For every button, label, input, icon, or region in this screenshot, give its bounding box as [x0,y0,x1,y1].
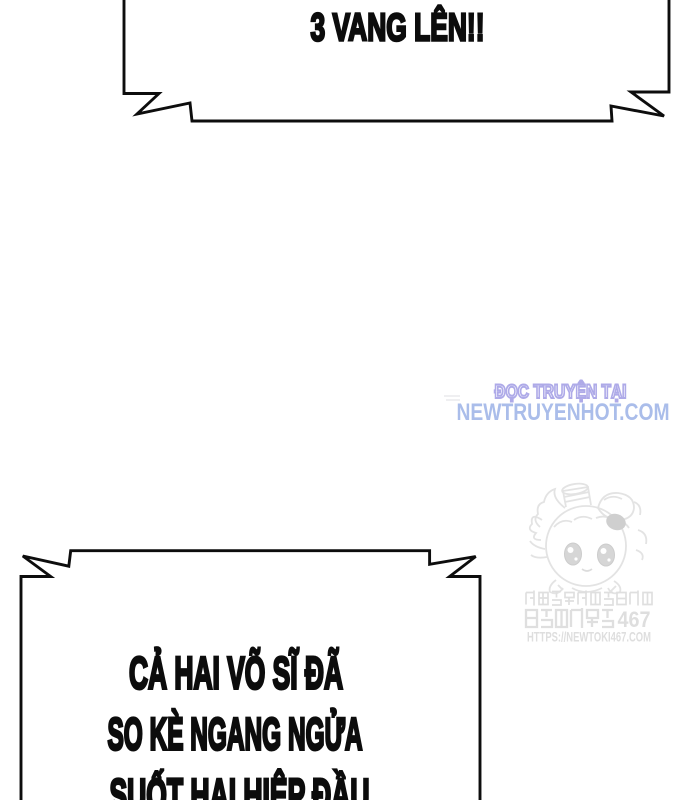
svg-text:CẢ HAI VÕ SĨ ĐÃ: CẢ HAI VÕ SĨ ĐÃ [129,648,343,699]
svg-text:SO KÈ NGANG NGỬA: SO KÈ NGANG NGỬA [108,709,363,760]
svg-text:NEWTRUYENHOT.COM: NEWTRUYENHOT.COM [457,399,670,426]
svg-text:SUỐT HAI HIỆP ĐẦU: SUỐT HAI HIỆP ĐẦU [110,770,370,800]
svg-text:HTTPS://NEWTOKI467.COM: HTTPS://NEWTOKI467.COM [527,629,651,645]
svg-text:3 VANG LÊN!!: 3 VANG LÊN!! [311,6,485,50]
